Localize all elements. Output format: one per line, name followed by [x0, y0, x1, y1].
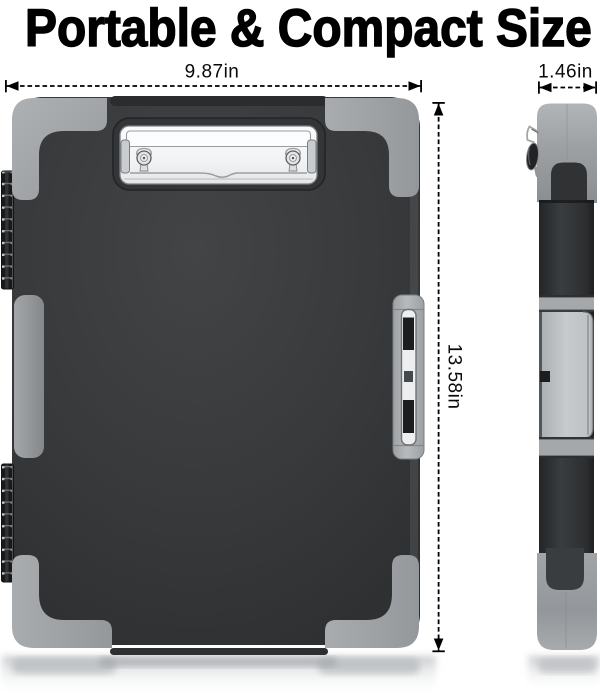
svg-text:9.87in: 9.87in	[185, 62, 240, 83]
svg-text:1.46in: 1.46in	[538, 62, 593, 83]
svg-text:13.58in: 13.58in	[444, 344, 465, 410]
